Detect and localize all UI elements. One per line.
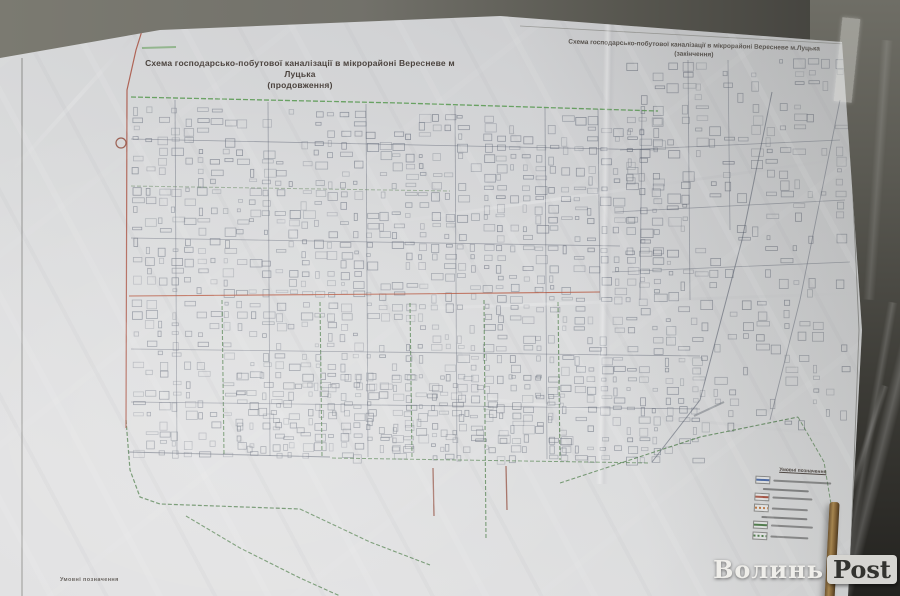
watermark-post: Post bbox=[827, 555, 897, 584]
watermark: Волинь Post bbox=[713, 555, 897, 584]
photo-of-map-poster: Схема господарсько-побутової каналізації… bbox=[0, 0, 900, 596]
watermark-volyn: Волинь bbox=[713, 555, 824, 584]
poster: Схема господарсько-побутової каналізації… bbox=[0, 0, 900, 596]
plastic-wrinkle-bands bbox=[0, 0, 900, 596]
